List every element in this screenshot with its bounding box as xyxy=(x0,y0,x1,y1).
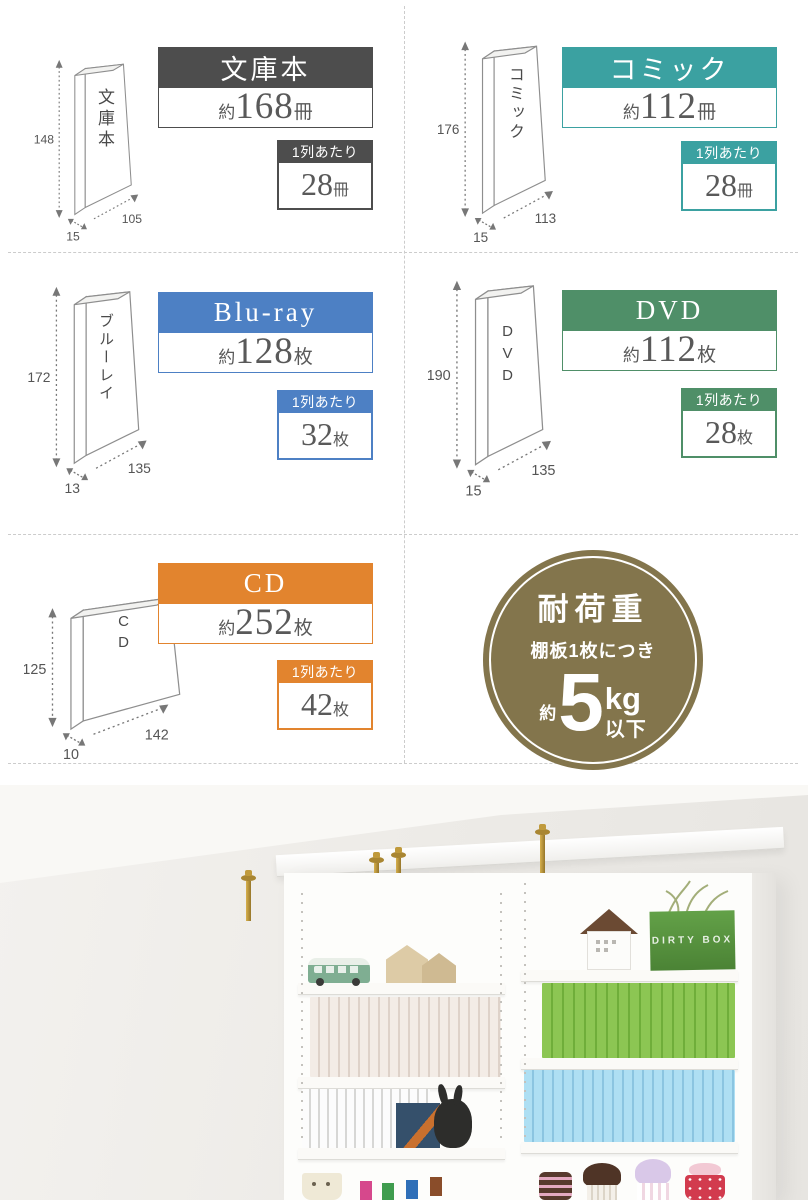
per-row-box: 1列あたり 28冊 xyxy=(277,140,373,210)
book-spine xyxy=(483,51,495,213)
arrowhead-thick-l xyxy=(467,470,474,477)
thickness-arrow xyxy=(71,221,83,228)
badge-suffix: 以下 xyxy=(605,720,647,740)
per-row-value: 42 xyxy=(301,686,333,722)
book-spine xyxy=(74,297,86,464)
total-unit: 冊 xyxy=(294,102,313,123)
toy-van xyxy=(308,958,370,983)
arrowhead-depth xyxy=(544,191,553,200)
per-row-capacity: 42枚 xyxy=(277,683,373,730)
case-spine xyxy=(71,610,83,729)
arrowhead-up xyxy=(461,41,469,50)
dim-thickness-label: 13 xyxy=(65,480,81,496)
load-capacity-badge: 耐荷重 棚板1枚につき 約 5 kg 以下 xyxy=(483,550,703,770)
tension-rod xyxy=(246,881,251,921)
shelf-board xyxy=(521,1142,738,1154)
media-type-header: Blu-ray xyxy=(158,292,373,333)
book-vertical-label: 文庫本 xyxy=(96,88,113,151)
per-row-header: 1列あたり xyxy=(277,390,373,413)
badge-ring: 耐荷重 棚板1枚につき 約 5 kg 以下 xyxy=(489,556,697,764)
capacity-card-cd: 125 142 10 CD CD 約252枚 1列あたり 42枚 xyxy=(0,535,404,763)
arrowhead-thick-l xyxy=(475,218,482,225)
horizontal-divider-3 xyxy=(8,763,798,764)
per-row-box: 1列あたり 32枚 xyxy=(277,390,373,460)
per-row-box: 1列あたり 28冊 xyxy=(681,141,777,211)
per-row-capacity: 28枚 xyxy=(681,411,777,458)
capacity-box: CD 約252枚 xyxy=(158,563,373,644)
approx-prefix: 約 xyxy=(218,103,235,122)
thickness-arrow xyxy=(479,220,493,228)
chocolate-cupcake-toy xyxy=(583,1163,621,1200)
book-vertical-label: コミック xyxy=(506,66,522,142)
dim-height-label: 172 xyxy=(28,369,51,385)
arrowhead-up xyxy=(453,281,461,290)
mug xyxy=(302,1173,342,1200)
per-row-header: 1列あたり xyxy=(681,141,777,164)
badge-unit: kg xyxy=(605,683,641,714)
capacity-card-comic: 176 113 15 コミック コミック 約112冊 1列あたり 28冊 xyxy=(404,0,808,252)
arrowhead-up xyxy=(56,60,63,68)
per-row-header: 1列あたり xyxy=(277,140,373,163)
per-row-capacity: 32枚 xyxy=(277,413,373,460)
bookshelf: DIRTY BOX xyxy=(284,873,776,1200)
per-row-unit: 枚 xyxy=(333,432,349,449)
house-body xyxy=(587,931,631,970)
badge-title: 耐荷重 xyxy=(538,584,649,629)
per-row-capacity: 28冊 xyxy=(277,163,373,210)
strawberry-cup-toy xyxy=(685,1167,725,1200)
bunkobon-dimension-diagram: 148 105 15 文庫本 xyxy=(30,46,170,244)
dim-height-label: 176 xyxy=(438,122,459,137)
per-row-header: 1列あたり xyxy=(681,388,777,411)
badge-value: 5 xyxy=(558,665,602,740)
dim-depth-label: 105 xyxy=(122,212,143,226)
arrowhead-up xyxy=(48,608,56,617)
arrowhead-down xyxy=(48,718,56,727)
shelf-board xyxy=(521,970,738,982)
total-capacity: 約168冊 xyxy=(158,88,373,128)
capacity-card-bluray: 172 135 13 ブルーレイ Blu-ray 約128枚 1列あたり 32枚 xyxy=(0,253,404,534)
arrowhead-down xyxy=(56,210,63,218)
total-value: 128 xyxy=(235,331,294,372)
per-row-unit: 冊 xyxy=(737,183,753,200)
media-type-header: CD xyxy=(158,563,373,604)
total-capacity: 約252枚 xyxy=(158,604,373,644)
dim-height-label: 190 xyxy=(428,368,451,384)
dim-depth-label: 135 xyxy=(531,463,555,479)
per-row-header: 1列あたり xyxy=(277,660,373,683)
dried-plant xyxy=(656,877,736,915)
thickness-arrow xyxy=(471,472,485,480)
dim-thickness-label: 15 xyxy=(66,230,80,244)
media-type-header: コミック xyxy=(562,47,777,88)
total-value: 168 xyxy=(235,86,294,127)
approx-prefix: 約 xyxy=(218,619,235,638)
case-vertical-label: CD xyxy=(116,613,131,655)
total-capacity: 約112枚 xyxy=(562,331,777,371)
peg-holes xyxy=(524,883,526,1138)
shelf-board xyxy=(521,1058,738,1070)
per-row-value: 28 xyxy=(705,414,737,450)
per-row-value: 28 xyxy=(705,167,737,203)
total-value: 112 xyxy=(640,329,697,370)
dim-thickness-label: 15 xyxy=(473,230,488,245)
per-row-capacity: 28冊 xyxy=(681,164,777,211)
total-capacity: 約128枚 xyxy=(158,333,373,373)
blue-books xyxy=(524,1070,735,1142)
per-row-value: 28 xyxy=(301,166,333,202)
badge-value-row: 約 5 kg 以下 xyxy=(539,665,647,740)
peg-holes xyxy=(301,893,303,1143)
book-spine xyxy=(75,69,85,215)
arrowhead-down xyxy=(461,208,469,217)
arrowhead-depth xyxy=(542,441,551,450)
approx-prefix: 約 xyxy=(218,348,235,367)
shelf-side-panel xyxy=(752,873,776,1200)
dim-thickness-label: 10 xyxy=(63,747,79,763)
cream-books xyxy=(310,997,501,1077)
wooden-crate: DIRTY BOX xyxy=(649,910,735,970)
capacity-box: DVD 約112枚 xyxy=(562,290,777,371)
thickness-arrow xyxy=(70,470,84,478)
dim-depth-label: 142 xyxy=(145,727,169,743)
book-vertical-label: DVD xyxy=(500,323,515,389)
capacity-card-bunkobon: 148 105 15 文庫本 文庫本 約168冊 1列あたり 28冊 xyxy=(0,0,404,252)
dim-height-label: 125 xyxy=(24,662,46,678)
product-photo: DIRTY BOX xyxy=(0,785,808,1200)
crate-stencil-text: DIRTY BOX xyxy=(652,934,733,946)
bluray-dimension-diagram: 172 135 13 ブルーレイ xyxy=(28,271,178,497)
arrowhead-depth xyxy=(130,195,138,203)
arrowhead-down xyxy=(52,458,60,467)
arrowhead-depth xyxy=(159,705,168,714)
total-capacity: 約112冊 xyxy=(562,88,777,128)
per-row-box: 1列あたり 42枚 xyxy=(277,660,373,730)
per-row-unit: 枚 xyxy=(737,430,753,447)
arrowhead-down xyxy=(453,460,461,469)
capacity-box: コミック 約112冊 xyxy=(562,47,777,128)
house-ornament xyxy=(580,909,638,970)
shelf-board xyxy=(298,983,505,995)
arrowhead-thick-l xyxy=(66,468,73,475)
total-value: 252 xyxy=(235,602,294,643)
capacity-card-dvd: 190 135 15 DVD DVD 約112枚 1列あたり 28枚 xyxy=(404,253,808,534)
dim-depth-label: 135 xyxy=(128,460,151,476)
thickness-arrow xyxy=(67,735,81,743)
badge-approx: 約 xyxy=(539,699,556,724)
arrowhead-depth xyxy=(138,441,147,450)
per-row-box: 1列あたり 28枚 xyxy=(681,388,777,458)
per-row-value: 32 xyxy=(301,416,333,452)
book-spine xyxy=(476,291,488,465)
total-unit: 枚 xyxy=(294,347,313,368)
total-value: 112 xyxy=(640,86,697,127)
approx-prefix: 約 xyxy=(623,103,640,122)
rabbit-figurine xyxy=(434,1099,472,1148)
total-unit: 枚 xyxy=(697,345,716,366)
shelf-board xyxy=(298,1148,505,1160)
capacity-box: 文庫本 約168冊 xyxy=(158,47,373,128)
book-vertical-label: ブルーレイ xyxy=(98,313,113,403)
dim-thickness-label: 15 xyxy=(465,484,481,500)
media-type-header: 文庫本 xyxy=(158,47,373,88)
badge-units: kg 以下 xyxy=(605,683,647,740)
per-row-unit: 枚 xyxy=(333,702,349,719)
shelf-board xyxy=(298,1077,505,1089)
dim-depth-label: 113 xyxy=(535,211,557,226)
dim-height-label: 148 xyxy=(34,132,55,146)
product-spec-page: 148 105 15 文庫本 文庫本 約168冊 1列あたり 28冊 xyxy=(0,0,808,1200)
green-books xyxy=(542,983,735,1058)
cupcake-toy xyxy=(633,1159,673,1200)
arrowhead-thick-l xyxy=(68,219,74,225)
toy-blocks xyxy=(360,1181,372,1200)
per-row-unit: 冊 xyxy=(333,182,349,199)
media-type-header: DVD xyxy=(562,290,777,331)
arrowhead-up xyxy=(52,287,60,296)
peg-holes xyxy=(500,893,502,1143)
chocolate-roll-toy xyxy=(539,1172,572,1200)
total-unit: 枚 xyxy=(294,618,313,639)
arrowhead-thick-l xyxy=(63,733,70,740)
capacity-box: Blu-ray 約128枚 xyxy=(158,292,373,373)
dvd-dimension-diagram: 190 135 15 DVD xyxy=(428,261,583,503)
total-unit: 冊 xyxy=(697,102,716,123)
approx-prefix: 約 xyxy=(623,346,640,365)
